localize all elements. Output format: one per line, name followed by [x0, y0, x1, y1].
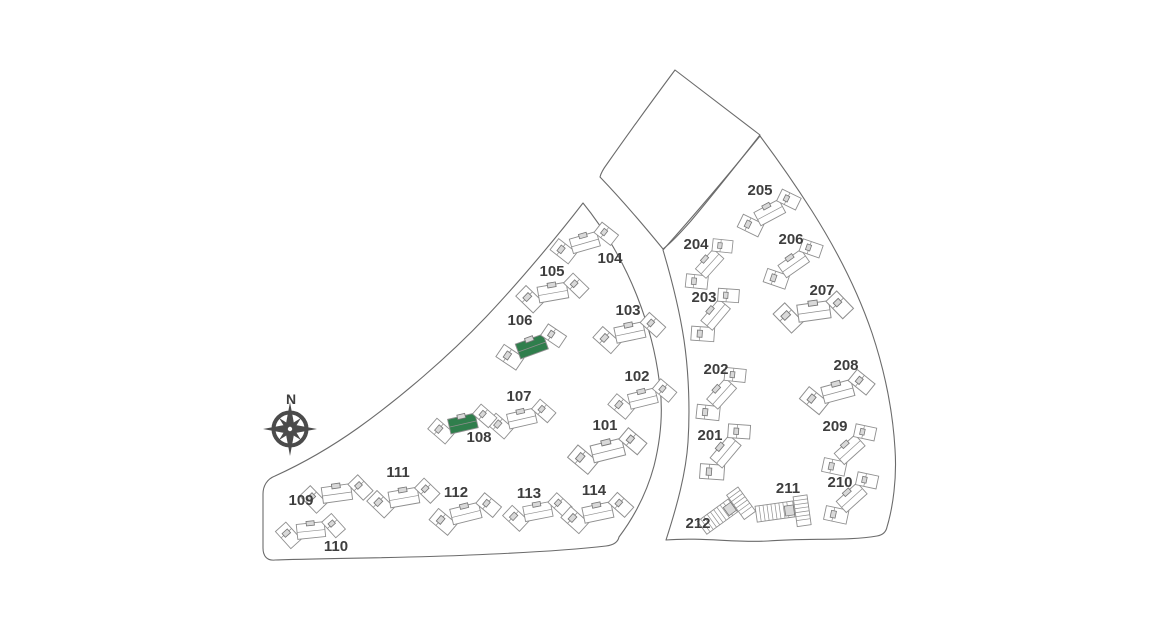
building-207[interactable]: 207: [771, 282, 855, 335]
building-label-113[interactable]: 113: [517, 485, 541, 502]
building-210[interactable]: 210: [815, 464, 887, 534]
building-label-104[interactable]: 104: [597, 250, 623, 267]
building-label-110[interactable]: 110: [324, 538, 348, 555]
building-label-211[interactable]: 211: [776, 480, 800, 497]
building-label-107[interactable]: 107: [506, 388, 531, 405]
building-108[interactable]: 108: [425, 401, 500, 447]
site-plan: N 10110210310410510610710810911011111211…: [0, 0, 1160, 640]
building-label-208[interactable]: 208: [833, 357, 858, 374]
future-plot-outline: [600, 70, 760, 249]
building-label-112[interactable]: 112: [444, 484, 468, 501]
compass-rose: N: [263, 391, 317, 456]
building-103[interactable]: 103: [590, 302, 668, 357]
building-label-205[interactable]: 205: [747, 182, 772, 199]
building-label-111[interactable]: 111: [386, 464, 409, 481]
building-109[interactable]: 109: [288, 473, 375, 515]
building-label-108[interactable]: 108: [466, 429, 491, 446]
building-111[interactable]: 111: [365, 464, 443, 520]
building-label-209[interactable]: 209: [822, 418, 847, 435]
building-102[interactable]: 102: [605, 368, 680, 423]
building-105[interactable]: 105: [514, 263, 592, 315]
building-label-210[interactable]: 210: [827, 474, 852, 491]
building-footprint-201[interactable]: [690, 414, 762, 491]
compass-center-dot: [288, 427, 292, 431]
building-footprint-211[interactable]: [754, 495, 811, 532]
building-208[interactable]: 208: [796, 357, 879, 418]
building-label-204[interactable]: 204: [683, 236, 709, 253]
site-plan-canvas: N 10110210310410510610710810911011111211…: [0, 0, 1160, 640]
building-203[interactable]: 203: [681, 279, 749, 352]
building-label-206[interactable]: 206: [778, 231, 803, 248]
building-label-202[interactable]: 202: [703, 361, 728, 378]
building-label-207[interactable]: 207: [809, 282, 834, 299]
building-label-102[interactable]: 102: [624, 368, 649, 385]
building-label-105[interactable]: 105: [539, 263, 564, 280]
building-label-114[interactable]: 114: [582, 482, 607, 499]
building-107[interactable]: 107: [484, 388, 559, 442]
building-104[interactable]: 104: [547, 219, 623, 268]
building-label-212[interactable]: 212: [685, 515, 710, 532]
building-202[interactable]: 202: [687, 358, 757, 430]
building-label-203[interactable]: 203: [691, 289, 716, 306]
building-label-101[interactable]: 101: [592, 417, 617, 434]
building-label-106[interactable]: 106: [507, 312, 532, 329]
building-212[interactable]: 212: [685, 487, 755, 542]
building-label-201[interactable]: 201: [697, 427, 722, 444]
building-106[interactable]: 106: [492, 312, 572, 375]
building-label-109[interactable]: 109: [288, 492, 313, 509]
building-footprint-111[interactable]: [365, 476, 443, 521]
building-113[interactable]: 113: [500, 485, 574, 534]
building-110[interactable]: 110: [274, 512, 348, 555]
buildings-layer: 1011021031041051061071081091101111121131…: [274, 182, 888, 555]
building-211[interactable]: 211: [754, 480, 811, 532]
building-201[interactable]: 201: [690, 414, 762, 491]
building-label-103[interactable]: 103: [615, 302, 640, 319]
building-101[interactable]: 101: [564, 417, 650, 478]
compass-north-label: N: [286, 391, 296, 407]
